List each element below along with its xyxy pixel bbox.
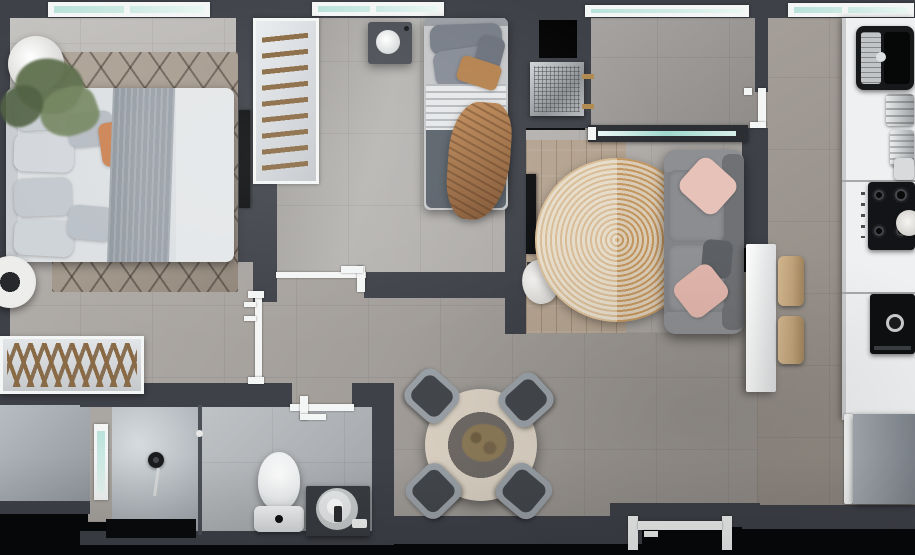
sink-faucet [876, 52, 886, 62]
wall-bedroom2-south [364, 272, 512, 298]
window-mullion [842, 3, 848, 17]
burner [870, 186, 888, 204]
entry-door-leaf [638, 521, 722, 530]
slatted-console-table [0, 336, 144, 394]
window-mullion [370, 2, 376, 16]
console-x-slats [7, 343, 137, 387]
exterior-bottom-left [0, 512, 88, 555]
duvet-highlight [176, 88, 234, 262]
vanity-counter [306, 486, 370, 536]
single-bed [424, 18, 508, 210]
bed-pillow [13, 177, 72, 217]
burner [892, 186, 910, 204]
entry-door-handle [644, 531, 658, 537]
window-second-bedroom [312, 2, 444, 16]
door-master-cap-top [248, 291, 264, 298]
ladder-clothes-rack [262, 23, 308, 176]
window-glass [794, 7, 908, 13]
breakfast-bar [746, 244, 776, 392]
cabinet-hinge [582, 104, 594, 109]
rug-pale-half [535, 158, 617, 322]
wall-bottom-center [392, 516, 642, 544]
oven-dial [886, 314, 904, 332]
bed-pillow [13, 133, 74, 173]
exterior-kitchen-bottom [742, 527, 915, 555]
refrigerator-edge [844, 414, 853, 504]
entry-door-post-left [628, 516, 638, 550]
apartment-floor-plan [0, 0, 915, 555]
cabinet-hinge [582, 74, 594, 79]
bed-throw-gray [107, 88, 175, 262]
bar-stool [778, 256, 804, 306]
bar-stool [778, 316, 804, 364]
glass-partition-living [588, 125, 748, 142]
cookware-small [894, 158, 914, 180]
window-glass [318, 6, 438, 12]
bath-mat [106, 519, 196, 538]
door-kitchen-leaf [758, 88, 766, 126]
door-second-bedroom-head [341, 266, 363, 273]
dish-rack [886, 94, 914, 126]
partition-end-cap [588, 127, 596, 140]
door-master-handle [244, 302, 256, 307]
window-kitchen [788, 3, 914, 17]
door-master-handle2 [244, 316, 256, 321]
door-kitchen-jamb [744, 88, 752, 95]
plate [896, 210, 915, 236]
wall-corridor-kitchen [755, 14, 768, 92]
table-lamp [376, 30, 400, 54]
floor-corridor [585, 14, 757, 130]
toilet-bowl [258, 452, 300, 510]
entry-door-post-right [722, 516, 732, 550]
dark-wall-panel [539, 20, 577, 58]
window-glass [591, 9, 743, 13]
window-mullion [124, 2, 130, 17]
window-master-bedroom [48, 2, 210, 17]
shower-glass-hinge [196, 430, 203, 437]
door-kitchen-sill [750, 122, 766, 128]
nightstand [368, 22, 412, 64]
wall-living-kitchen [742, 128, 768, 248]
bed-pillow [13, 218, 75, 257]
oven-handle [874, 346, 911, 350]
door-master-cap-bottom [248, 377, 264, 384]
wall-kitchen-bottom [742, 505, 915, 529]
metal-mesh-cabinet [530, 62, 584, 116]
wall-bathroom-right [372, 383, 394, 537]
sofa [664, 150, 744, 334]
floor-utility-room [0, 403, 90, 505]
lamp-switch [404, 26, 409, 31]
shower-glass-screen [198, 405, 202, 535]
oven [870, 294, 915, 354]
tv-master-bedroom [239, 110, 250, 208]
window-glass [97, 431, 105, 493]
burner [870, 222, 888, 240]
door-bathroom-arm [300, 414, 326, 420]
wall-utility-top [0, 393, 92, 405]
wall-utility-bottom [0, 501, 90, 514]
mesh-grid [534, 66, 580, 112]
window-bathroom [94, 424, 108, 500]
shower-head [148, 452, 164, 468]
kitchen-sink-unit [856, 26, 914, 90]
basin-faucet [334, 506, 342, 522]
door-master-jamb [255, 295, 262, 379]
soap-dish [352, 519, 367, 528]
wall-nook-side [253, 180, 277, 302]
refrigerator [853, 414, 915, 504]
toilet-flush-button [275, 515, 283, 523]
sink-basin [884, 32, 910, 84]
window-corridor [585, 5, 749, 17]
partition-glass [598, 131, 736, 136]
wardrobe-nook-frame [253, 18, 319, 184]
cooktop-knobs [861, 192, 865, 238]
